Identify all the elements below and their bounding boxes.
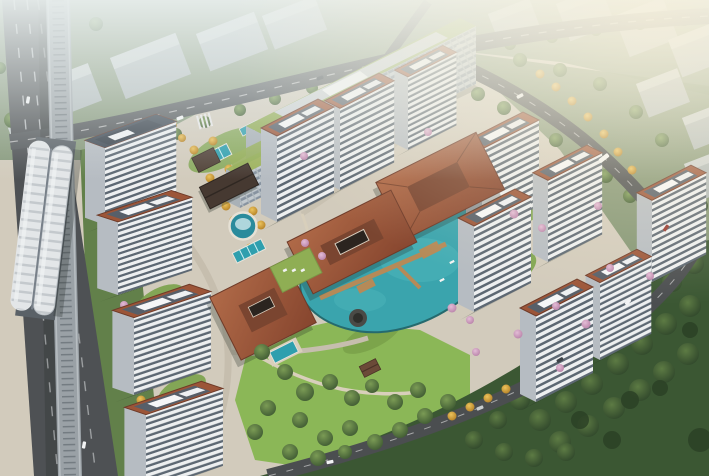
rendering-canvas [0,0,709,476]
sun-glow [0,0,709,476]
aerial-rendering-residential-complex [0,0,709,476]
